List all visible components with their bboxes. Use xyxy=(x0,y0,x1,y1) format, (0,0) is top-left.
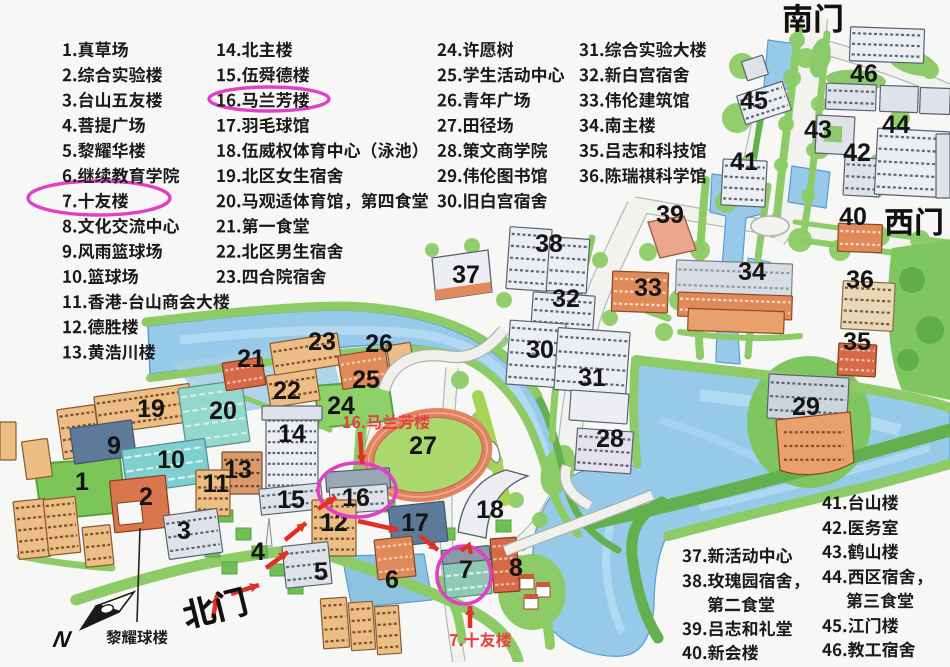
svg-text:34: 34 xyxy=(738,258,766,286)
svg-text:2: 2 xyxy=(139,483,153,511)
svg-text:44: 44 xyxy=(882,111,910,139)
svg-text:15: 15 xyxy=(277,486,305,514)
svg-text:4: 4 xyxy=(251,538,265,566)
svg-text:19: 19 xyxy=(137,395,165,423)
svg-text:42: 42 xyxy=(843,139,871,167)
svg-text:1: 1 xyxy=(75,468,89,496)
svg-text:6: 6 xyxy=(385,566,399,594)
svg-text:43: 43 xyxy=(804,116,832,144)
svg-text:3: 3 xyxy=(177,517,191,545)
svg-text:29: 29 xyxy=(792,393,820,421)
svg-text:10: 10 xyxy=(157,446,185,474)
svg-text:36: 36 xyxy=(846,266,874,294)
svg-text:28: 28 xyxy=(596,425,624,453)
svg-text:35: 35 xyxy=(843,328,871,356)
svg-text:45: 45 xyxy=(740,87,768,115)
svg-text:32: 32 xyxy=(552,285,580,313)
svg-text:17: 17 xyxy=(401,509,429,537)
svg-text:40: 40 xyxy=(839,203,867,231)
svg-text:23: 23 xyxy=(308,328,336,356)
svg-text:30: 30 xyxy=(526,336,554,364)
svg-text:20: 20 xyxy=(209,397,237,425)
svg-text:38: 38 xyxy=(535,230,563,258)
svg-text:24: 24 xyxy=(327,392,355,420)
svg-text:14: 14 xyxy=(278,420,306,448)
svg-text:39: 39 xyxy=(656,201,684,229)
svg-text:21: 21 xyxy=(237,345,265,373)
svg-text:37: 37 xyxy=(452,261,480,289)
svg-text:18: 18 xyxy=(476,496,504,524)
svg-text:27: 27 xyxy=(409,432,437,460)
svg-text:25: 25 xyxy=(352,366,380,394)
svg-text:46: 46 xyxy=(850,60,878,88)
svg-text:33: 33 xyxy=(634,274,662,302)
svg-text:26: 26 xyxy=(365,330,393,358)
svg-text:5: 5 xyxy=(314,558,328,586)
svg-text:7: 7 xyxy=(459,556,473,584)
svg-text:16: 16 xyxy=(342,484,370,512)
svg-text:31: 31 xyxy=(578,364,606,392)
svg-text:41: 41 xyxy=(730,148,758,176)
svg-text:22: 22 xyxy=(273,377,301,405)
svg-text:9: 9 xyxy=(107,432,121,460)
svg-text:13: 13 xyxy=(224,456,252,484)
svg-text:8: 8 xyxy=(509,554,523,582)
